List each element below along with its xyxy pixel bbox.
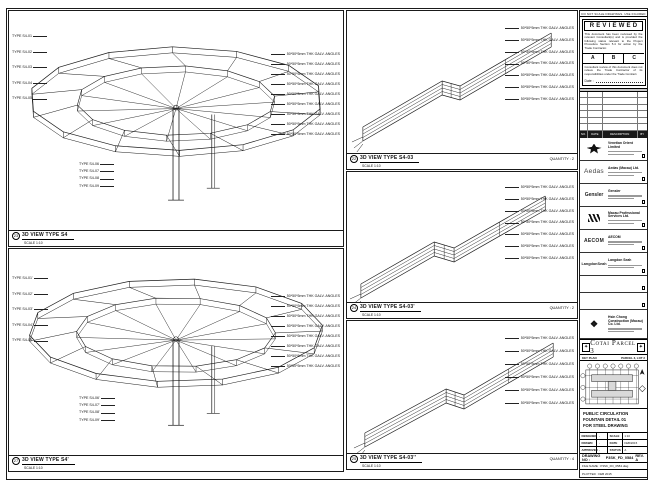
annotation-label: 50*50*5mm THK GALV. ANGLES [504,210,574,214]
annotation-text: 50*50*5mm THK GALV. ANGLES [521,27,574,31]
leader-line [505,351,519,352]
leader-line [34,294,48,295]
reviewed-stamp: REVIEWED This document has been reviewed… [582,19,646,87]
leader-line [505,87,519,88]
address-line [608,331,634,332]
leader-line [505,364,519,365]
annotation-text: 50*50*5mm THK GALV. ANGLES [287,93,340,97]
annotation-label: TYPE S4-04' [12,324,50,328]
consultant-row-langdon-seah: LangdonSeahLangdon Seah [580,253,647,276]
leader-line [100,171,114,172]
consultant-list: Venetian Orient LimitedAedasAedas (Macau… [580,138,647,340]
annotation-text: 50*50*5mm THK GALV. ANGLES [521,186,574,190]
annotation-text: TYPE S4-03 [12,66,32,70]
drawing-title-line: FOR STEEL DRAWING [583,423,644,429]
consultant-info: Macau Professional Services Ltd. [608,212,645,224]
annotation-label: 50*50*5mm THK GALV. ANGLES [270,63,340,67]
annotation-label: TYPE S4-03 [12,66,49,70]
leader-line [34,325,48,326]
leader-line [271,306,285,307]
annotation-label: 50*50*5mm THK GALV. ANGLES [504,389,574,393]
annotation-text: 50*50*5mm THK GALV. ANGLES [287,63,340,67]
annotation-text: 50*50*5mm THK GALV. ANGLES [287,133,340,137]
revision-header-cell: NO. [580,131,588,138]
annotation-text: 50*50*5mm THK GALV. ANGLES [521,389,574,393]
annotation-text: TYPE S4-09 [79,185,99,189]
annotation-label: 50*50*5mm THK GALV. ANGLES [504,198,574,202]
consultant-info: Aedas (Macau) Ltd. [608,167,645,176]
field-cell: APPROVED [580,447,597,453]
leader-line [505,258,519,259]
annotation-text: 50*50*5mm THK GALV. ANGLES [287,83,340,87]
annotation-label: TYPE S4-08' [79,411,117,415]
annotation-text: 50*50*5mm THK GALV. ANGLES [287,355,340,359]
annotation-label: TYPE S4-02' [12,293,50,297]
annotation-label: TYPE S4-05' [12,339,50,343]
annotation-label: 50*50*5mm THK GALV. ANGLES [504,350,574,354]
leader-line [271,356,285,357]
field-cell: DATE [608,440,623,446]
annotation-label: TYPE S4-04 [12,82,49,86]
annotation-text: TYPE S4-02 [12,51,32,55]
leader-line [271,104,285,105]
annotation-label: 50*50*5mm THK GALV. ANGLES [270,335,340,339]
consultant-name: Gensler [608,190,645,194]
annotation-label: 50*50*5mm THK GALV. ANGLES [270,103,340,107]
annotation-text: 50*50*5mm THK GALV. ANGLES [521,363,574,367]
annotation-text: TYPE S4-05 [12,97,32,101]
annotation-text: 50*50*5mm THK GALV. ANGLES [287,73,340,77]
venetian-logo-icon [587,144,602,154]
mps-logo [582,214,606,222]
leader-line [505,28,519,29]
annotation-text: 50*50*5mm THK GALV. ANGLES [521,74,574,78]
annotation-label: 50*50*5mm THK GALV. ANGLES [270,133,340,137]
field-cell: A [623,447,647,453]
field-cell: - [597,447,608,453]
venetian-logo [582,144,606,154]
leader-line [101,413,115,414]
annotation-label: 50*50*5mm THK GALV. ANGLES [270,53,340,57]
leader-line [505,75,519,76]
banner-medallion-icon: ✦ [582,343,590,352]
address-line [608,328,642,329]
annotation-text: 50*50*5mm THK GALV. ANGLES [521,350,574,354]
field-cell: SCALE [608,433,623,439]
status-checkbox [642,154,646,158]
annotation-label: 50*50*5mm THK GALV. ANGLES [270,123,340,127]
consultant-name: Aedas (Macau) Ltd. [608,167,645,171]
address-line [608,244,634,245]
scale-note: SCALE 1:10 [24,241,340,245]
leader-line [505,199,519,200]
annotation-label: 50*50*5mm THK GALV. ANGLES [504,74,574,78]
key-plan-map [580,361,647,409]
view-title: 3D VIEW TYPE S4 [22,232,74,240]
consultant-name: Venetian Orient Limited [608,142,645,149]
address-line [608,223,634,224]
consultant-row-hsin-chong-construction-macau-co-ltd: ❖Hsin Chong Construction (Macau) Co. Ltd… [580,310,647,339]
address-line [608,267,634,268]
status-checkbox [642,303,646,307]
drawing-number-label: DRAWING NO : [582,454,604,462]
consultant-logo-icon: Aedas [584,168,604,175]
annotation-text: TYPE S4-01' [12,277,33,281]
consultant-logo: ❖ [582,319,606,330]
annotation-text: 50*50*5mm THK GALV. ANGLES [521,233,574,237]
field-cell: FEB/2015 [623,440,647,446]
view-label-bar: 27 3D VIEW TYPE S4' SCALE 1:10 [9,455,343,471]
field-cell: DESIGNED [580,433,597,439]
annotation-label: 50*50*5mm THK GALV. ANGLES [270,83,340,87]
banner-medallion-icon: ✦ [637,343,645,352]
annotation-text: 50*50*5mm THK GALV. ANGLES [521,86,574,90]
view-label-bar: 24 3D VIEW TYPE S4-03' QUANTITY : 2 SCAL… [347,302,577,318]
status-checkbox [642,269,646,273]
leader-line [34,278,48,279]
consultant-info: Gensler [608,190,645,199]
view-panel-s4-03: 50*50*5mm THK GALV. ANGLES50*50*5mm THK … [346,10,578,170]
field-row: APPROVED-STATUSA [580,447,647,454]
bottom-annotations: TYPE S4-06'TYPE S4-07'TYPE S4-08'TYPE S4… [79,397,117,426]
address-line [608,175,634,176]
annotation-label: TYPE S4-07' [79,404,117,408]
annotation-label: 50*50*5mm THK GALV. ANGLES [504,337,574,341]
scale-note: SCALE 1:10 [24,466,340,470]
grade-b: B [604,54,625,63]
annotation-text: 50*50*5mm THK GALV. ANGLES [287,345,340,349]
consultant-row-empty [580,293,647,310]
annotation-label: 50*50*5mm THK GALV. ANGLES [270,113,340,117]
leader-line [271,336,285,337]
consultant-logo: LangdonSeah [582,262,606,266]
bottom-annotations: TYPE S4-06TYPE S4-07TYPE S4-08TYPE S4-09 [79,163,116,192]
annotation-label: 50*50*5mm THK GALV. ANGLES [504,233,574,237]
project-name: Cotai Parcel 3 [590,339,636,355]
annotation-text: 50*50*5mm THK GALV. ANGLES [521,245,574,249]
annotation-text: 50*50*5mm THK GALV. ANGLES [521,210,574,214]
annotation-label: TYPE S4-06' [79,397,117,401]
status-checkbox [642,177,646,181]
annotation-text: TYPE S4-06' [79,397,100,401]
leader-line [33,99,47,100]
consultant-name: Langdon Seah [608,259,645,263]
annotation-label: 50*50*5mm THK GALV. ANGLES [270,325,340,329]
view-panel-s4-prime: TYPE S4-01'TYPE S4-02'TYPE S4-03'TYPE S4… [8,248,344,472]
right-annotations: 50*50*5mm THK GALV. ANGLES50*50*5mm THK … [504,27,574,109]
annotation-label: TYPE S4-09' [79,419,117,423]
revision-header-cell: BY [638,131,647,138]
consultant-logo-icon: LangdonSeah [581,262,606,266]
drawing-number-row: DRAWING NO : P3SK_FD_0584 REV. A [580,454,647,463]
left-annotations: TYPE S4-01'TYPE S4-02'TYPE S4-03'TYPE S4… [12,277,50,355]
leader-line [271,346,285,347]
annotation-text: 50*50*5mm THK GALV. ANGLES [287,315,340,319]
annotation-label: 50*50*5mm THK GALV. ANGLES [504,98,574,102]
leader-line [101,420,115,421]
parcel-label: PARCEL 3, LOT 2 [621,356,645,360]
leader-line [34,309,48,310]
leader-line [33,83,47,84]
annotation-label: 50*50*5mm THK GALV. ANGLES [270,345,340,349]
consultant-row-aecom: AECOMAECOM [580,230,647,253]
consultant-info: AECOM [608,236,645,245]
leader-line [505,246,519,247]
view-title: 3D VIEW TYPE S4' [22,457,75,465]
annotation-label: 50*50*5mm THK GALV. ANGLES [270,355,340,359]
revision-header-cell: DATE [588,131,603,138]
annotation-text: 50*50*5mm THK GALV. ANGLES [287,325,340,329]
leader-line [33,67,47,68]
leader-line [271,316,285,317]
consultant-name: Hsin Chong Construction (Macau) Co. Ltd. [608,316,645,327]
annotation-label: 50*50*5mm THK GALV. ANGLES [504,186,574,190]
leader-line [505,234,519,235]
view-panel-s4-03-dblprime: 50*50*5mm THK GALV. ANGLES50*50*5mm THK … [346,320,578,470]
annotation-label: 50*50*5mm THK GALV. ANGLES [504,86,574,90]
address-line [608,172,642,173]
consultant-row-empty [580,276,647,293]
annotation-label: 50*50*5mm THK GALV. ANGLES [504,51,574,55]
annotation-text: 50*50*5mm THK GALV. ANGLES [521,98,574,102]
grade-c: C [624,54,644,63]
leader-line [505,64,519,65]
annotation-label: 50*50*5mm THK GALV. ANGLES [504,62,574,66]
annotation-label: TYPE S4-06 [79,163,116,167]
right-annotations: 50*50*5mm THK GALV. ANGLES50*50*5mm THK … [270,295,340,375]
annotation-text: 50*50*5mm THK GALV. ANGLES [521,198,574,202]
leader-line [34,341,48,342]
leader-line [271,296,285,297]
annotation-label: 50*50*5mm THK GALV. ANGLES [270,73,340,77]
title-block-strip: DO NOT SCALE DRAWINGS. USE FIGURED DIMEN… [579,10,648,478]
address-line [608,198,634,199]
project-banner: ✦ Cotai Parcel 3 ✦ [580,339,647,355]
leader-line [271,124,285,125]
sheet-note: DO NOT SCALE DRAWINGS. USE FIGURED DIMEN… [580,11,647,17]
annotation-text: TYPE S4-02' [12,293,33,297]
stamp-paragraph-2: Consultant review of this document does … [583,65,644,78]
annotation-label: 50*50*5mm THK GALV. ANGLES [504,363,574,367]
leader-line [271,54,285,55]
address-line [608,195,642,196]
annotation-text: 50*50*5mm THK GALV. ANGLES [287,365,340,369]
view-title: 3D VIEW TYPE S4-03 [360,155,419,163]
consultant-logo-icon: AECOM [584,238,604,244]
annotation-label: 50*50*5mm THK GALV. ANGLES [504,257,574,261]
annotation-label: TYPE S4-01' [12,277,50,281]
annotation-label: 50*50*5mm THK GALV. ANGLES [270,305,340,309]
revision-header: NO.DATEDESCRIPTIONBY [580,131,647,138]
annotation-text: TYPE S4-03' [12,308,33,312]
annotation-text: 50*50*5mm THK GALV. ANGLES [287,113,340,117]
quantity-note: QUANTITY : 2 [550,157,574,161]
annotation-text: 50*50*5mm THK GALV. ANGLES [521,221,574,225]
address-line [608,241,642,242]
left-annotations: TYPE S4-01TYPE S4-02TYPE S4-03TYPE S4-04… [12,35,49,113]
view-label-bar: 25 3D VIEW TYPE S4-03'' QUANTITY : 4 SCA… [347,453,577,469]
leader-line [100,164,114,165]
leader-line [505,223,519,224]
date-fill-line [596,79,643,83]
address-line [608,154,634,155]
grade-a: A [583,54,604,63]
drawing-sheet: TYPE S4-01TYPE S4-02TYPE S4-03TYPE S4-04… [0,0,650,488]
annotation-text: 50*50*5mm THK GALV. ANGLES [287,335,340,339]
consultant-logo-icon: Gensler [585,192,604,198]
annotation-text: 50*50*5mm THK GALV. ANGLES [287,305,340,309]
leader-line [505,211,519,212]
drawing-title: PUBLIC CIRCULATION FOUNTAIN DETAIL 01 FO… [580,409,647,433]
plotted-row: PLOTTED : FEB 2015 [580,470,647,477]
consultant-logo: Gensler [582,192,606,198]
meinhardt-logo-icon [588,214,600,222]
annotation-label: TYPE S4-09 [79,185,116,189]
revision-table: NO.DATEDESCRIPTIONBY [580,92,647,138]
field-row: DRAWN-DATEFEB/2015 [580,440,647,447]
field-row: DESIGNED-SCALE1:10 [580,433,647,440]
consultant-info: Langdon Seah [608,259,645,268]
annotation-text: TYPE S4-05' [12,339,33,343]
reviewed-title: REVIEWED [584,21,643,31]
detail-bubble: 25 [350,455,358,463]
consultant-logo: Aedas [582,168,606,175]
leader-line [271,64,285,65]
annotation-label: 50*50*5mm THK GALV. ANGLES [504,245,574,249]
stamp-date-row: Date : [583,78,644,85]
address-line [608,265,642,266]
annotation-label: 50*50*5mm THK GALV. ANGLES [504,402,574,406]
annotation-text: TYPE S4-06 [79,163,99,167]
annotation-label: 50*50*5mm THK GALV. ANGLES [270,315,340,319]
view-label-bar: 23 3D VIEW TYPE S4 SCALE 1:10 [9,230,343,246]
leader-line [100,186,114,187]
detail-bubble: 24 [350,304,358,312]
annotation-text: 50*50*5mm THK GALV. ANGLES [287,53,340,57]
right-annotations: 50*50*5mm THK GALV. ANGLES50*50*5mm THK … [504,337,574,415]
quantity-note: QUANTITY : 2 [550,306,574,310]
detail-bubble: 27 [12,457,20,465]
quantity-note: QUANTITY : 4 [550,457,574,461]
annotation-label: 50*50*5mm THK GALV. ANGLES [270,365,340,369]
annotation-text: 50*50*5mm THK GALV. ANGLES [521,376,574,380]
scale-note: SCALE 1:10 [362,164,574,168]
field-cell: DRAWN [580,440,597,446]
leader-line [271,84,285,85]
annotation-text: 50*50*5mm THK GALV. ANGLES [521,402,574,406]
leader-line [505,338,519,339]
status-checkbox [642,246,646,250]
leader-line [505,187,519,188]
leader-line [33,52,47,53]
annotation-text: 50*50*5mm THK GALV. ANGLES [521,257,574,261]
annotation-text: TYPE S4-09' [79,419,100,423]
view-panel-s4-03-prime: 50*50*5mm THK GALV. ANGLES50*50*5mm THK … [346,171,578,319]
annotation-text: TYPE S4-04 [12,82,32,86]
leader-line [505,403,519,404]
detail-bubble: 22 [350,155,358,163]
revision-code: REV. A [635,454,645,462]
scale-note: SCALE 1:10 [362,464,574,468]
revision-header-cell: DESCRIPTION [603,131,638,138]
annotation-text: 50*50*5mm THK GALV. ANGLES [521,337,574,341]
detail-bubble: 23 [12,232,20,240]
leader-line [33,36,47,37]
leader-line [271,114,285,115]
leader-line [271,366,285,367]
date-label: Date : [585,79,594,83]
field-cell: - [597,433,608,439]
consultant-row-macau-professional-services-ltd: Macau Professional Services Ltd. [580,207,647,230]
field-cell: 1:10 [623,433,647,439]
field-cell: - [597,440,608,446]
leader-line [505,52,519,53]
address-line [608,151,642,152]
annotation-label: 50*50*5mm THK GALV. ANGLES [270,93,340,97]
annotation-text: TYPE S4-08 [79,177,99,181]
leader-line [101,398,115,399]
annotation-label: 50*50*5mm THK GALV. ANGLES [504,376,574,380]
view-label-bar: 22 3D VIEW TYPE S4-03 QUANTITY : 2 SCALE… [347,153,577,169]
right-annotations: 50*50*5mm THK GALV. ANGLES50*50*5mm THK … [504,186,574,268]
leader-line [505,40,519,41]
annotation-label: TYPE S4-08 [79,177,116,181]
consultant-logo-icon: ❖ [590,319,598,330]
consultant-info: Hsin Chong Construction (Macau) Co. Ltd. [608,316,645,332]
field-cell: STATUS [608,447,623,453]
stamp-paragraph-1: This document has been reviewed by the r… [583,32,644,52]
leader-line [101,405,115,406]
right-annotations: 50*50*5mm THK GALV. ANGLES50*50*5mm THK … [270,53,340,143]
annotation-text: TYPE S4-07' [79,404,100,408]
consultant-row-aedas-macau-ltd: AedasAedas (Macau) Ltd. [580,161,647,184]
annotation-label: TYPE S4-07 [79,170,116,174]
annotation-text: 50*50*5mm THK GALV. ANGLES [287,123,340,127]
consultant-name: AECOM [608,236,645,240]
annotation-text: 50*50*5mm THK GALV. ANGLES [521,62,574,66]
leader-line [505,99,519,100]
annotation-label: 50*50*5mm THK GALV. ANGLES [270,295,340,299]
leader-line [271,326,285,327]
file-name-row: FILE NAME : P3SK_FD_0584.dwg [580,463,647,470]
annotation-text: 50*50*5mm THK GALV. ANGLES [287,103,340,107]
annotation-label: 50*50*5mm THK GALV. ANGLES [504,27,574,31]
leader-line [271,94,285,95]
leader-line [271,74,285,75]
annotation-label: 50*50*5mm THK GALV. ANGLES [504,221,574,225]
annotation-label: TYPE S4-05 [12,97,49,101]
key-plan-label: KEY PLAN [582,356,597,360]
annotation-text: TYPE S4-08' [79,411,100,415]
consultant-row-venetian-orient-limited: Venetian Orient Limited [580,138,647,161]
annotation-label: TYPE S4-01 [12,35,49,39]
annotation-text: 50*50*5mm THK GALV. ANGLES [521,39,574,43]
stamp-grade-row: ABC [583,53,644,64]
annotation-text: 50*50*5mm THK GALV. ANGLES [287,295,340,299]
leader-line [505,390,519,391]
drawing-number: P3SK_FD_0584 [606,456,634,460]
consultant-logo: AECOM [582,238,606,244]
annotation-text: 50*50*5mm THK GALV. ANGLES [521,51,574,55]
consultant-info: Venetian Orient Limited [608,142,645,154]
annotation-label: TYPE S4-03' [12,308,50,312]
leader-line [100,179,114,180]
title-block-fields: DESIGNED-SCALE1:10DRAWN-DATEFEB/2015APPR… [580,433,647,454]
address-line [608,220,642,221]
status-checkbox [642,223,646,227]
scale-note: SCALE 1:10 [362,313,574,317]
consultant-row-gensler: GenslerGensler [580,184,647,207]
